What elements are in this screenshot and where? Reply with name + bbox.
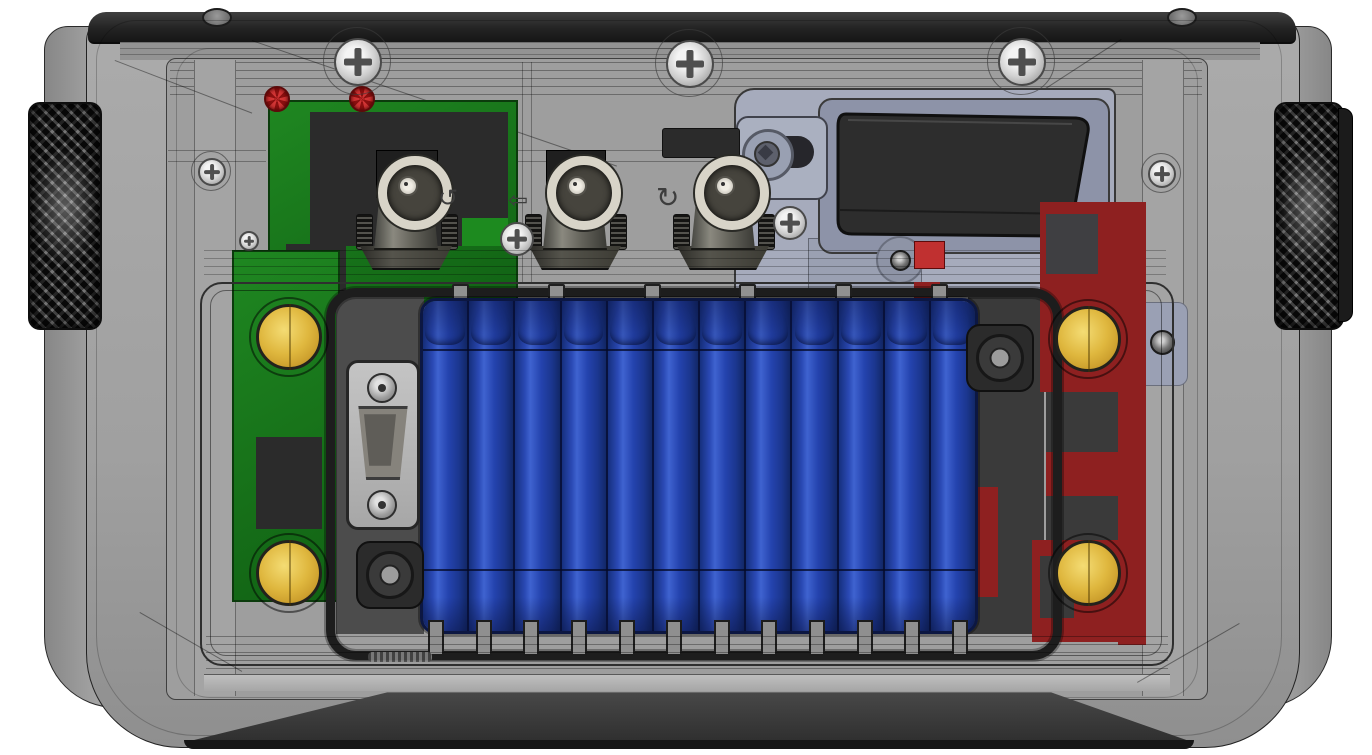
- bnc-center-pin: [567, 176, 587, 196]
- top-screw: [998, 38, 1046, 86]
- compartment-shelf-lines: [204, 250, 1166, 282]
- rubber-grommet: [356, 541, 424, 609]
- battery-seam: [423, 349, 975, 351]
- bnc-knurl-ear: [356, 214, 373, 250]
- cad-rear-view: ↺ ⇦ ↻: [0, 0, 1372, 755]
- right-knob-cap: [1338, 108, 1353, 322]
- bottom-edge-bar: [184, 740, 1194, 749]
- rotate-ccw-icon: ↺: [438, 186, 458, 210]
- right-rotary-knob: [1274, 102, 1344, 330]
- top-screw: [666, 40, 714, 88]
- gold-standoff: [1055, 540, 1121, 606]
- wireframe-line: [168, 150, 266, 151]
- bottom-hairlines: [206, 636, 1168, 674]
- panel-screw: [773, 206, 807, 240]
- bnc-knurl-ear: [441, 214, 458, 250]
- battery-shade-top: [423, 301, 975, 353]
- bottom-light-strip: [204, 674, 1170, 691]
- gold-standoff: [256, 540, 322, 606]
- red-component: [914, 241, 945, 269]
- rotate-cw-icon: ↻: [656, 184, 679, 212]
- bnc-knurl-ear: [673, 214, 690, 250]
- top-screw: [334, 38, 382, 86]
- vent-slot: [662, 128, 740, 158]
- gold-standoff: [1055, 306, 1121, 372]
- side-screw: [1148, 160, 1176, 188]
- bnc-knurl-ear: [610, 214, 627, 250]
- left-rotary-knob: [28, 102, 102, 330]
- indicator-led: [264, 86, 290, 112]
- spring-contact: [368, 652, 432, 662]
- gold-standoff: [256, 304, 322, 370]
- red-pcb-dark-notch: [1046, 214, 1098, 274]
- battery-pack: [420, 298, 978, 634]
- left-arrow-icon: ⇦: [508, 188, 528, 212]
- side-screw: [198, 158, 226, 186]
- bnc-center-pin: [715, 176, 735, 196]
- bnc-center-pin: [398, 176, 418, 196]
- side-screw: [239, 231, 259, 251]
- battery-seam: [423, 569, 975, 571]
- dsub-screw-bottom: [367, 490, 397, 520]
- rubber-grommet: [966, 324, 1034, 392]
- dsub-screw-top: [367, 373, 397, 403]
